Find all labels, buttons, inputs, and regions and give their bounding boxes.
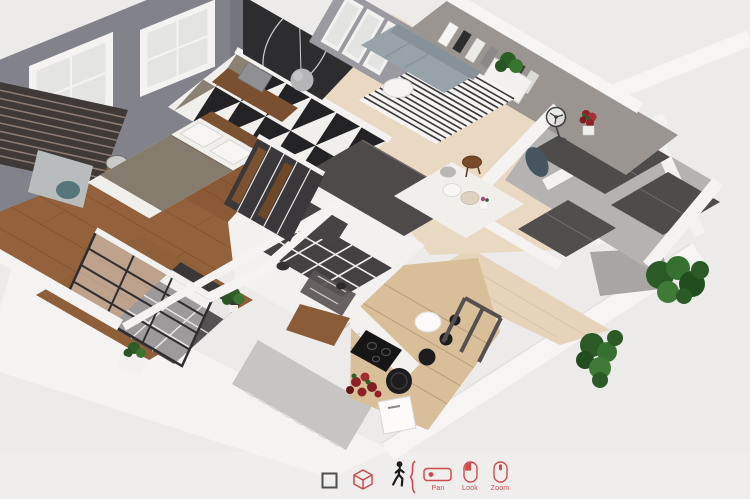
look-label: Look [455,485,485,492]
table-flower-pot [480,197,489,209]
pendant-lamp-sphere [291,69,314,92]
kitchen-door [378,396,416,434]
bowl [440,167,456,178]
view-3d-cube-icon[interactable] [351,468,375,492]
bowl [443,184,461,197]
background-bottom-strip [0,452,750,499]
3d-viewport[interactable] [0,0,750,499]
pan-label: Pan [423,485,453,492]
desk-chair [56,181,80,199]
trackpad-icon[interactable] [423,467,453,483]
toilet [277,262,290,271]
kitchen-dome [415,312,441,332]
bowl [461,192,479,205]
plan-2d-icon[interactable] [321,472,338,489]
mode-separator-brace-icon [407,460,417,494]
round-side-table [383,79,413,99]
zoom-label: Zoom [485,485,515,492]
mouse-left-button-icon[interactable] [463,461,478,483]
mouse-scroll-icon[interactable] [493,461,508,483]
